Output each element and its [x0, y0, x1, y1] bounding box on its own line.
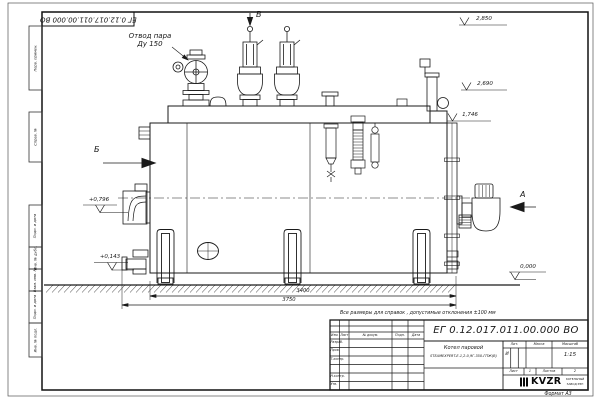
margin-stamp-label: Подп. и дата — [34, 214, 38, 238]
doc-number-stamp-top: ЕГ 0.12.017.011.00.000 ВО — [42, 12, 134, 26]
title-role-prov: Пров. — [331, 349, 350, 353]
elevation-stack-top: 2,690 — [463, 81, 507, 87]
margin-stamp-perv-primen: Перв. примен. — [29, 26, 42, 90]
steam-outlet-valve — [173, 50, 209, 106]
margin-stamp-label: Инв. № дубл. — [34, 246, 38, 271]
margin-stamp-label: Инв. № подл. — [34, 328, 38, 353]
title-lit-value: И — [503, 353, 511, 358]
logo-caption-line2: ЗАВОД РЭП — [563, 383, 587, 386]
title-header-list: Лист — [340, 334, 350, 338]
elevation-left-upper: +0,796 — [82, 197, 116, 203]
margin-stamp-podp-data-2: Подп. и дата — [29, 291, 42, 323]
title-sheet-label: Лист — [503, 370, 524, 374]
elevation-valve-top: 2,850 — [461, 16, 507, 22]
margin-stamp-label: Справ. № — [34, 128, 38, 145]
safety-valves — [238, 26, 301, 106]
elevation-ground: 0,000 — [510, 264, 546, 270]
title-header-data: Дата — [408, 334, 424, 338]
title-role-nkontr: Н.контр. — [331, 375, 350, 379]
title-role-tkontr: Т.контр. — [331, 358, 350, 362]
manhole — [197, 242, 219, 260]
title-doc-number: ЕГ 0.12.017.011.00.000 ВО — [425, 325, 587, 336]
view-marker-right: А — [520, 191, 525, 200]
elevation-marks — [83, 18, 546, 280]
title-lit-label: Лит. — [503, 343, 526, 347]
margin-stamp-vzam-inv: Взам. инв. № — [29, 269, 42, 291]
level-gauge-instruments — [324, 116, 379, 182]
ground-hatching — [46, 286, 455, 293]
title-role-utv: Утв. — [331, 383, 350, 387]
title-sheet-value: 1 — [524, 370, 536, 374]
title-product-model: STEAMEXPERT-Е-1,2-0,9Г-350-ГПЖ(В) — [425, 355, 503, 359]
dimension-overall-length: 3750 — [273, 298, 305, 304]
elevation-shell-top: 1,746 — [449, 112, 491, 118]
margin-stamp-podp-data-1: Подп. и дата — [29, 205, 42, 247]
doc-number-stamp-text: ЕГ 0.12.017.011.00.000 ВО — [40, 15, 137, 23]
title-sheets-value: 2 — [562, 370, 588, 374]
boiler-supports — [157, 230, 430, 285]
view-marker-left: Б — [94, 146, 100, 155]
elevation-left-lower: +0,143 — [93, 254, 127, 260]
boiler-body — [150, 99, 447, 273]
left-wall-fittings — [122, 127, 150, 274]
format-label: Формат А3 — [528, 392, 588, 397]
title-scale-label: Масштаб — [552, 343, 588, 347]
title-header-podp: Подп. — [392, 334, 408, 338]
title-scale-value: 1:15 — [552, 352, 588, 358]
margin-stamp-inv-podl: Инв. № подл. — [29, 323, 42, 357]
steam-outlet-leader — [172, 47, 188, 60]
title-product-name: Котел паровой — [424, 346, 503, 352]
margin-stamp-label: Перв. примен. — [34, 45, 38, 72]
view-marker-top: В — [256, 11, 262, 20]
reference-note: Все размеры для справок , допустимые отк… — [340, 311, 496, 316]
title-mass-label: Масса — [526, 343, 552, 347]
title-header-izm: Изм. — [330, 334, 340, 338]
title-header-doc: № докум. — [349, 334, 392, 338]
logo-caption-line1: КОТЕЛЬНЫЙ — [563, 378, 587, 381]
margin-stamp-sprav: Справ. № — [29, 112, 42, 162]
burner-assembly — [447, 184, 500, 269]
drawing-sheet: ЕГ 0.12.017.011.00.000 ВО Перв. примен. … — [0, 0, 600, 400]
title-sheets-label: Листов — [536, 370, 562, 374]
dimension-supports-span: 3400 — [287, 289, 319, 295]
margin-stamp-label: Подп. и дата — [34, 295, 38, 319]
steam-outlet-callout-line2: Ду 150 — [119, 41, 181, 49]
title-role-razrab: Разраб. — [331, 341, 350, 345]
margin-stamp-label: Взам. инв. № — [34, 268, 38, 292]
margin-stamp-inv-dubl: Инв. № дубл. — [29, 247, 42, 269]
ground-line — [44, 285, 520, 293]
kvzr-logo: KVZR — [531, 377, 562, 387]
